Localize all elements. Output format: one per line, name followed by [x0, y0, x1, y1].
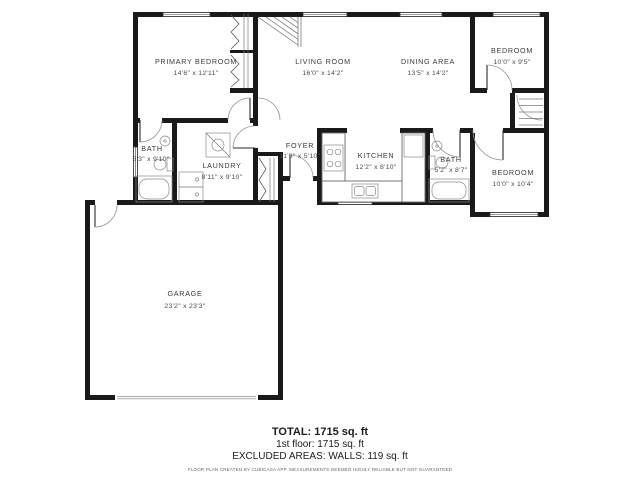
washer-icon — [179, 172, 203, 187]
window-bedroom-top-right — [493, 13, 540, 17]
door-hall-living — [258, 98, 280, 120]
door-bath-left — [140, 118, 162, 142]
bathtub-icon — [429, 179, 469, 202]
summary-block: TOTAL: 1715 sq. ft 1st floor: 1715 sq. f… — [0, 426, 640, 472]
first-floor-area-text: 1st floor: 1715 sq. ft — [0, 439, 640, 451]
door-garage-side — [95, 200, 117, 227]
floor-plan-drawing: PRIMARY BEDROOM 14'6" x 12'11" LIVING RO… — [0, 0, 640, 480]
label-bath-right: BATH — [440, 155, 461, 164]
excluded-areas-text: EXCLUDED AREAS: WALLS: 119 sq. ft — [0, 451, 640, 463]
dims-dining-area: 13'5" x 14'2" — [407, 70, 448, 77]
label-kitchen: KITCHEN — [358, 151, 394, 160]
door-bedroom-bottom-right — [473, 128, 503, 160]
window-dining-area — [400, 13, 442, 17]
label-dining-area: DINING AREA — [401, 57, 455, 66]
counter-left — [322, 133, 345, 183]
window-bedroom-bottom-right — [490, 213, 538, 217]
dims-garage: 23'2" x 23'3" — [164, 303, 205, 310]
window-primary-bedroom — [163, 13, 210, 17]
counter-right — [402, 133, 425, 202]
door-primary-bedroom — [228, 98, 250, 123]
label-living-room: LIVING ROOM — [295, 57, 351, 66]
label-primary-bedroom: PRIMARY BEDROOM — [155, 57, 237, 66]
dims-bath-right: 5'2" x 8'7" — [434, 167, 467, 174]
label-laundry: LAUNDRY — [202, 161, 241, 170]
window-living-room — [303, 13, 347, 17]
door-bath-right — [433, 128, 460, 157]
garage-door — [115, 395, 258, 400]
dims-foyer: 11'9" x 5'10" — [280, 153, 321, 160]
utility-sink-icon — [206, 133, 230, 157]
disclaimer-text: FLOOR PLAN CREATED BY CUBICASA APP. MEAS… — [0, 467, 640, 472]
dims-bath-left: 5'3" x 9'10" — [132, 156, 169, 163]
dims-kitchen: 12'2" x 8'10" — [355, 164, 396, 171]
bathtub-icon — [136, 176, 172, 202]
floor-plan-page: PRIMARY BEDROOM 14'6" x 12'11" LIVING RO… — [0, 0, 640, 480]
sink-icon — [432, 141, 442, 151]
dims-bedroom-bottom-right: 10'0" x 10'4" — [492, 181, 533, 188]
hall-closet-shelves — [519, 99, 543, 125]
label-garage: GARAGE — [168, 289, 203, 298]
dims-primary-bedroom: 14'6" x 12'11" — [174, 70, 219, 77]
door-bedroom-top-right — [487, 65, 512, 93]
dims-laundry: 8'11" x 9'10" — [202, 174, 243, 181]
total-area-text: TOTAL: 1715 sq. ft — [0, 426, 640, 439]
dryer-icon — [179, 187, 203, 202]
label-bedroom-top-right: BEDROOM — [491, 46, 533, 55]
dims-bedroom-top-right: 10'0" x 9'5" — [493, 59, 530, 66]
foyer-closet — [259, 158, 274, 202]
hatched-area — [258, 17, 301, 47]
door-laundry — [233, 126, 258, 148]
dims-living-room: 16'0" x 14'2" — [302, 70, 343, 77]
label-bath-left: BATH — [141, 144, 162, 153]
label-foyer: FOYER — [286, 141, 314, 150]
label-bedroom-bottom-right: BEDROOM — [492, 168, 534, 177]
